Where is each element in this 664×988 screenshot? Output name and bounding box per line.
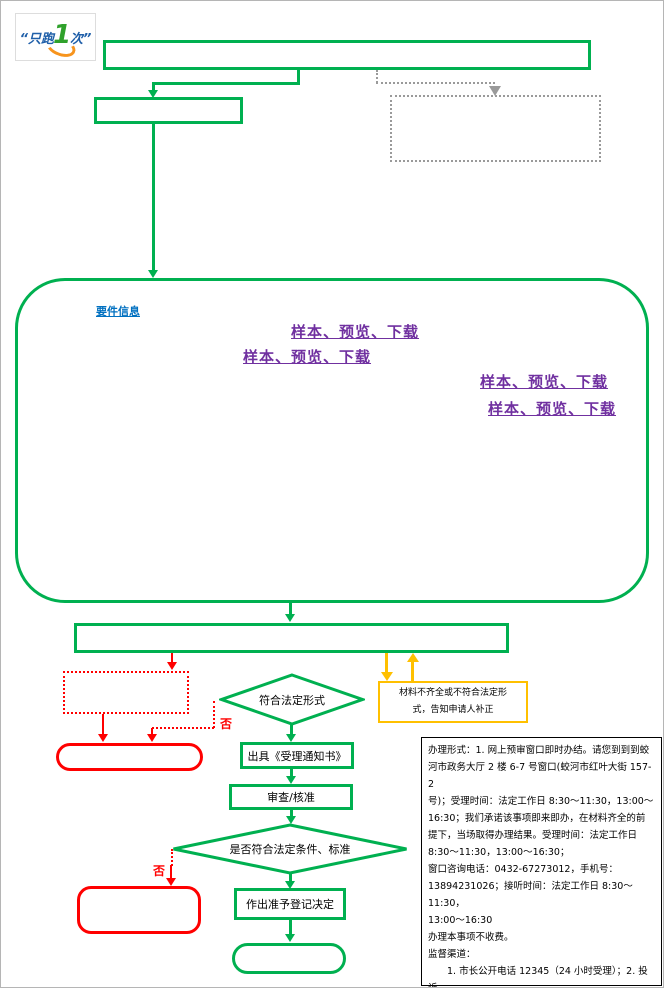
review-approve-box: 审查/核准 xyxy=(229,784,353,810)
grant-registration-box: 作出准予登记决定 xyxy=(234,888,346,920)
decision-diamond-conditions-label: 是否符合法定条件、标准 xyxy=(171,823,409,875)
connector-line xyxy=(102,714,104,735)
process-box-accept xyxy=(74,623,509,653)
requirements-info-link[interactable]: 要件信息 xyxy=(96,303,140,319)
process-box-top xyxy=(103,40,591,70)
sample-preview-download-link-4[interactable]: 样本、预览、下载 xyxy=(488,398,616,419)
supplement-correction-box: 材料不齐全或不符合法定形 式，告知申请人补正 xyxy=(378,681,528,723)
arrow-down-icon xyxy=(285,934,295,942)
red-result-pill-1 xyxy=(56,743,203,771)
dashed-note-box xyxy=(390,95,601,162)
decision-diamond-legal-form-label: 符合法定形式 xyxy=(219,673,365,726)
dotted-no-path xyxy=(213,701,215,728)
dotted-no-path xyxy=(171,849,173,866)
connector-line xyxy=(152,124,155,271)
process-box-second xyxy=(94,97,243,124)
end-terminator-pill xyxy=(232,943,346,974)
acceptance-notice-box: 出具《受理通知书》 xyxy=(240,742,354,769)
arrow-down-icon xyxy=(147,734,157,742)
connector-line xyxy=(152,82,300,85)
arrow-down-icon xyxy=(98,734,108,742)
connector-line xyxy=(289,920,292,935)
service-info-panel: 办理形式：1. 网上预审窗口即时办结。请您到到到蛟 河市政务大厅 2 楼 6-7… xyxy=(421,737,662,986)
sample-preview-download-link-2[interactable]: 样本、预览、下载 xyxy=(243,346,371,367)
arrow-down-icon xyxy=(285,614,295,622)
arrow-down-icon xyxy=(167,662,177,670)
red-result-pill-2 xyxy=(77,886,201,934)
arrow-down-icon xyxy=(166,878,176,886)
arrow-down-icon xyxy=(286,776,296,784)
arrow-down-icon xyxy=(286,734,296,742)
zhipao-once-logo: “只跑 1 次” xyxy=(15,13,96,61)
connector-line xyxy=(385,653,388,673)
connector-line xyxy=(411,661,414,681)
sample-preview-download-link-3[interactable]: 样本、预览、下载 xyxy=(480,371,608,392)
dotted-connector-line xyxy=(376,82,495,84)
dotted-no-path xyxy=(152,727,214,729)
sample-preview-download-link-1[interactable]: 样本、预览、下载 xyxy=(291,321,419,342)
connector-line xyxy=(170,865,172,879)
red-dashed-box xyxy=(63,671,189,714)
no-label: 否 xyxy=(153,862,165,879)
flowchart-page: “只跑 1 次” 要件信息 样本、预览、下载 样本、预览、下载 样本、预览、下载… xyxy=(0,0,664,988)
arrow-down-icon xyxy=(381,672,393,681)
arrow-down-icon xyxy=(148,270,158,278)
